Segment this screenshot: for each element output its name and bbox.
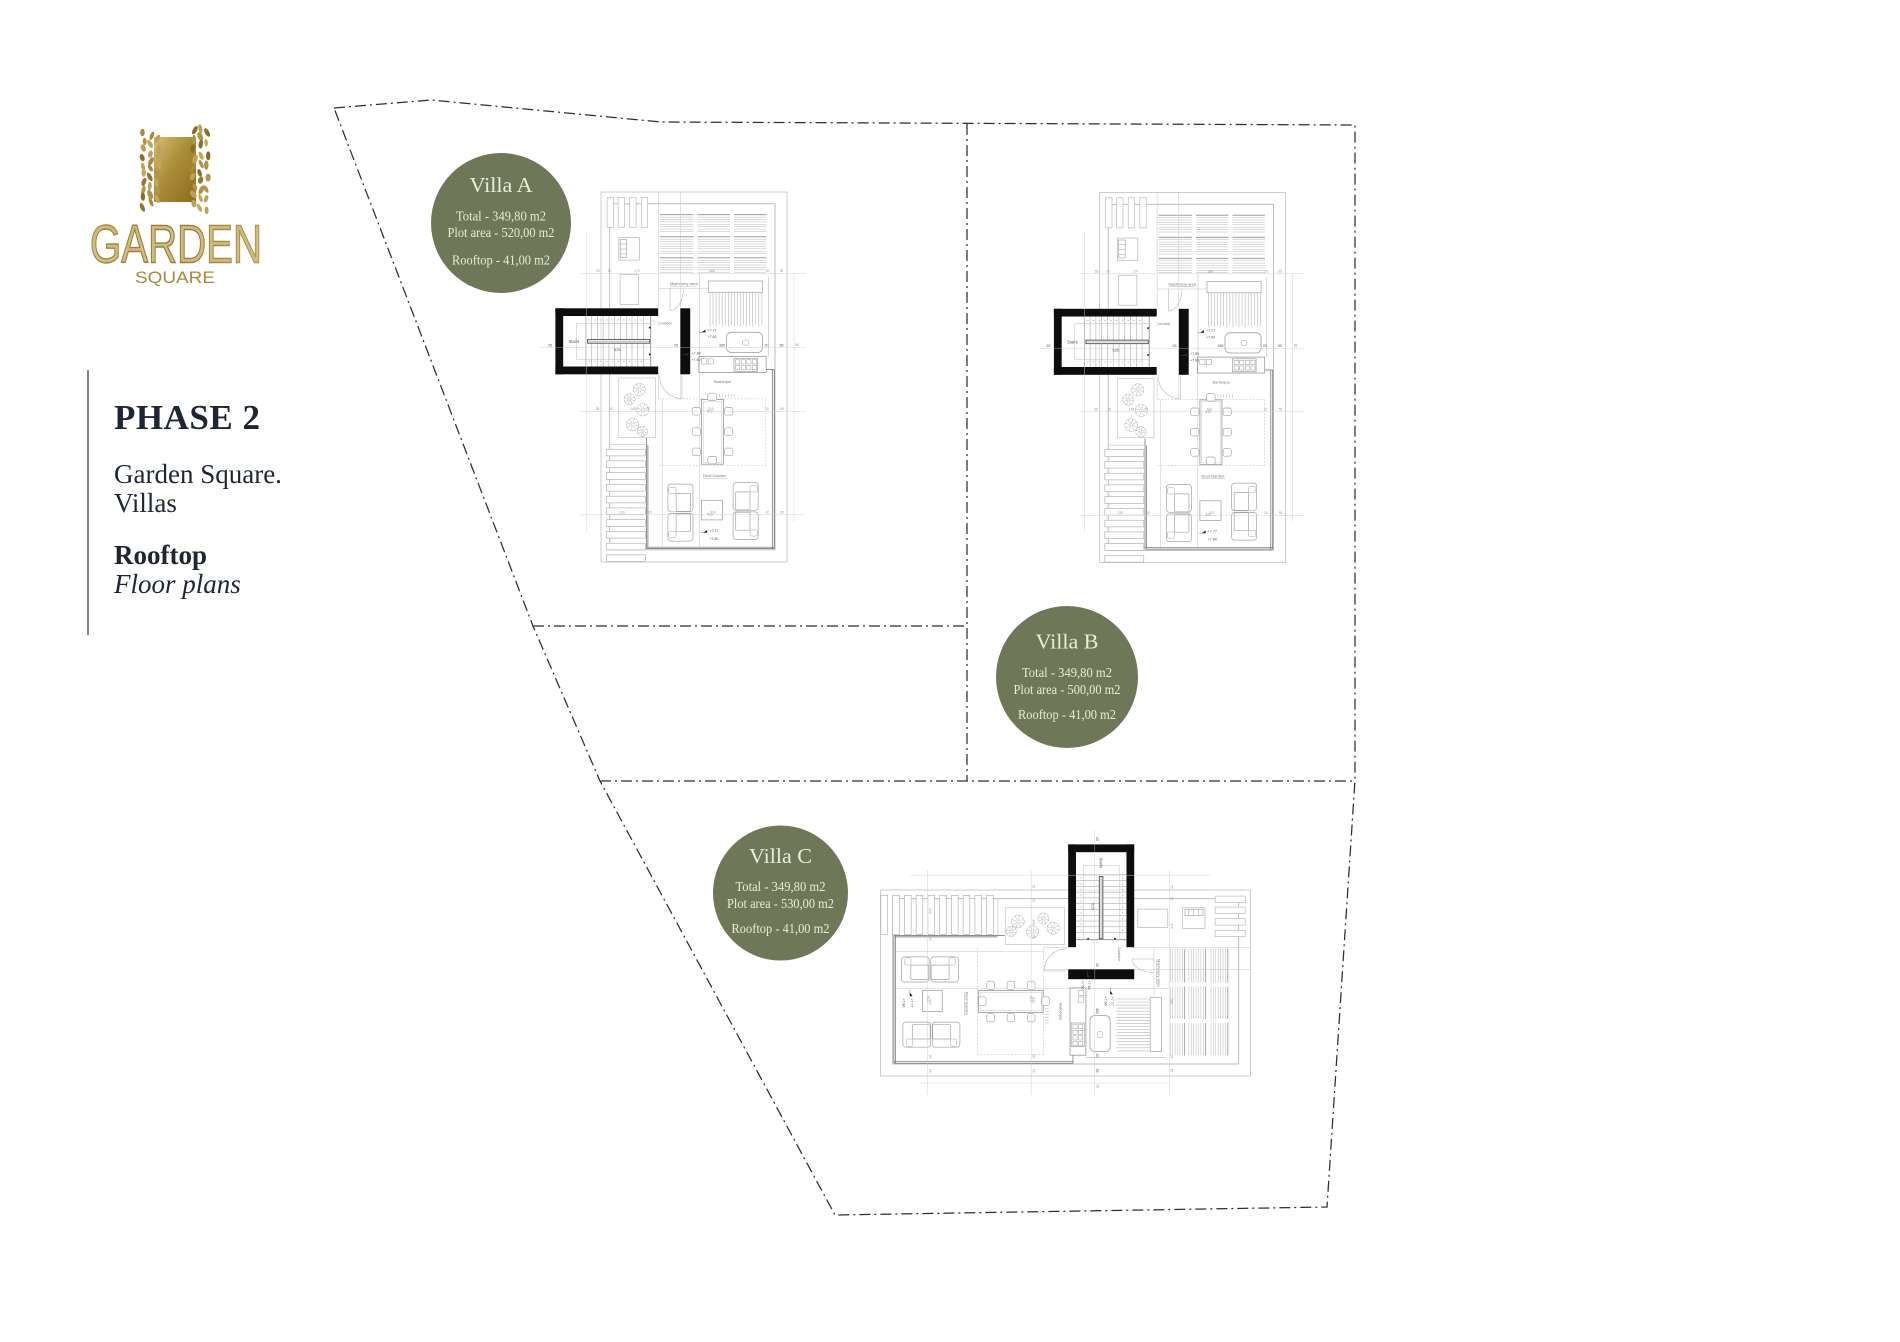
svg-text:Total - 349,80 m2: Total - 349,80 m2 <box>736 879 826 894</box>
svg-text:Villa A: Villa A <box>470 173 533 197</box>
svg-text:Villa C: Villa C <box>749 844 812 868</box>
svg-text:Plot area - 500,00 m2: Plot area - 500,00 m2 <box>1014 682 1121 697</box>
svg-text:Rooftop - 41,00 m2: Rooftop - 41,00 m2 <box>732 921 830 936</box>
svg-text:Rooftop - 41,00 m2: Rooftop - 41,00 m2 <box>452 253 550 268</box>
svg-text:Plot area - 530,00 m2: Plot area - 530,00 m2 <box>727 896 834 911</box>
svg-text:Rooftop - 41,00 m2: Rooftop - 41,00 m2 <box>1018 707 1116 722</box>
svg-text:Total - 349,80 m2: Total - 349,80 m2 <box>1022 665 1112 680</box>
svg-text:GARDEN: GARDEN <box>90 215 262 275</box>
svg-text:SQUARE: SQUARE <box>135 268 215 287</box>
svg-text:Plot area - 520,00 m2: Plot area - 520,00 m2 <box>448 225 555 240</box>
svg-text:Villa B: Villa B <box>1036 630 1099 654</box>
svg-text:Total - 349,80 m2: Total - 349,80 m2 <box>456 209 546 224</box>
